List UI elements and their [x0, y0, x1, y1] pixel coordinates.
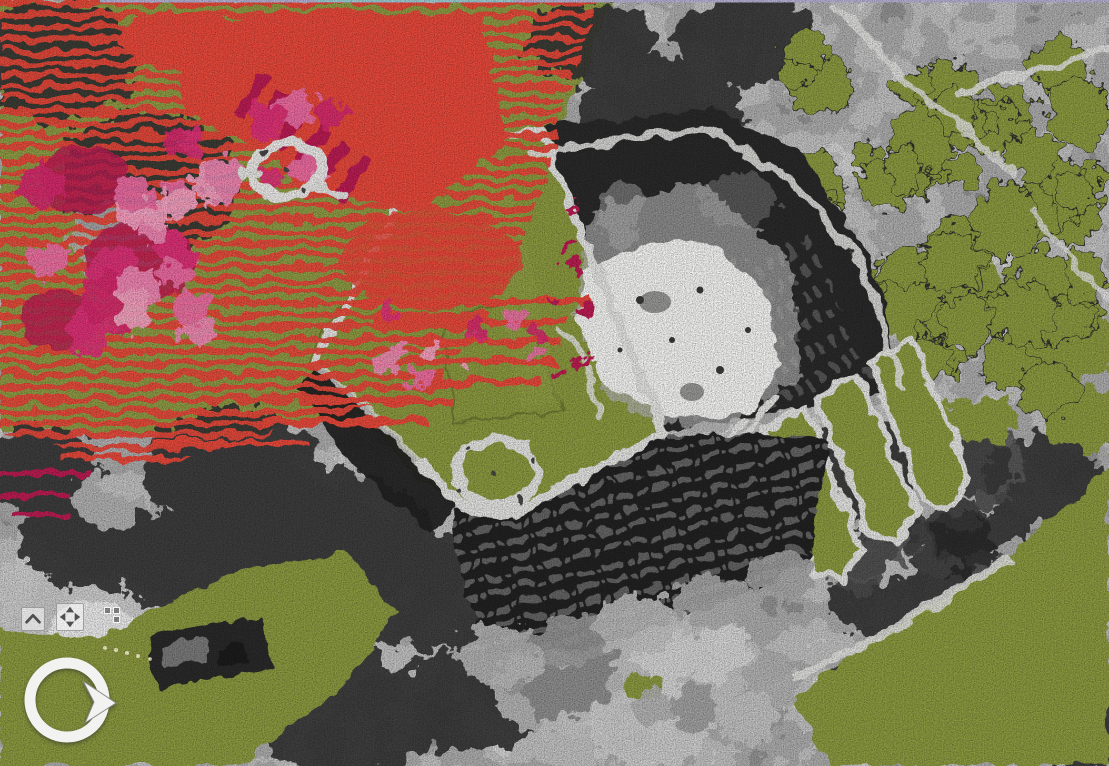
rotation-compass-icon: [20, 652, 120, 752]
collapse-toolbar-button[interactable]: [21, 607, 45, 631]
chevron-up-icon: [22, 608, 44, 630]
pan-arrows-icon: [57, 604, 83, 630]
rotation-compass-button[interactable]: [20, 652, 120, 752]
scene-3d-viewport[interactable]: [0, 0, 1109, 766]
point-dither-overlay: [0, 0, 1109, 766]
pan-button[interactable]: [56, 603, 84, 631]
viewport-grid-button[interactable]: [103, 605, 129, 627]
point-cloud-viewer: [0, 0, 1109, 766]
